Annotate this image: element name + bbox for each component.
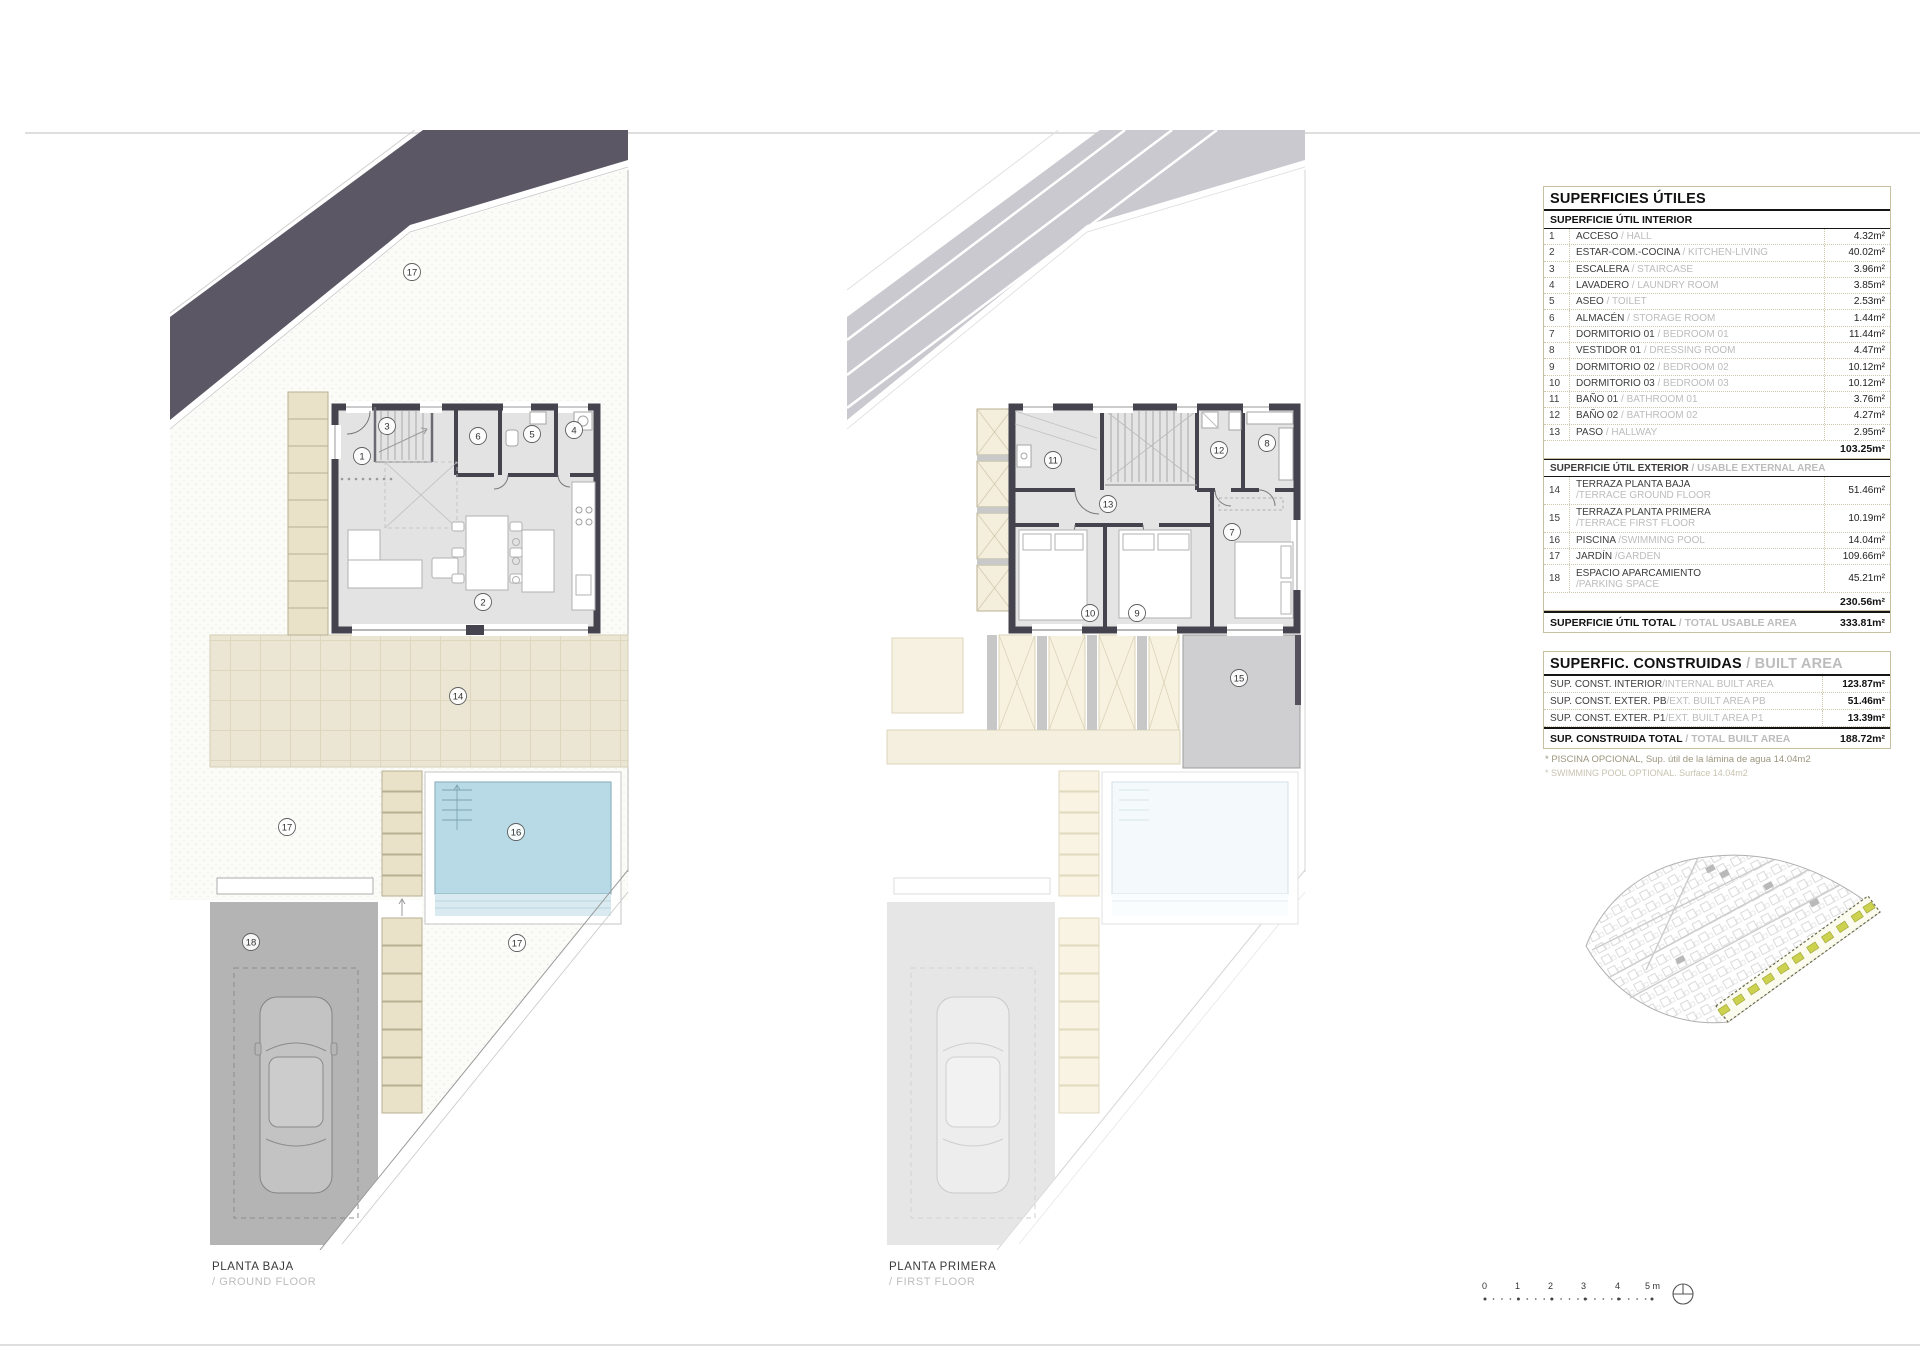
row-name: ACCESO / HALL: [1569, 229, 1824, 244]
table-row: 6ALMACÉN / STORAGE ROOM1.44m²: [1544, 310, 1890, 326]
row-name: BAÑO 02 / BATHROOM 02: [1569, 408, 1824, 423]
ground-floor-plan: 17 1 3 6 5 4 2 14 17 16 18 17: [170, 130, 630, 1250]
drawing-sheet: 17 1 3 6 5 4 2 14 17 16 18 17: [0, 0, 1920, 1358]
table-row: 1ACCESO / HALL4.32m²: [1544, 229, 1890, 245]
row-name-es: SUP. CONST. EXTER. P1: [1550, 713, 1665, 724]
room-number-label: 17: [509, 935, 526, 952]
built-total-row: SUP. CONSTRUIDA TOTAL / TOTAL BUILT AREA…: [1544, 727, 1890, 748]
room-name-en: /SWIMMING POOL: [1618, 535, 1705, 546]
room-number-label: 6: [470, 428, 487, 445]
row-name-en: /INTERNAL BUILT AREA: [1662, 679, 1774, 690]
room-name-es: ALMACÉN: [1576, 313, 1624, 324]
swimming-pool: [425, 772, 621, 924]
row-name: ESPACIO APARCAMIENTO/PARKING SPACE: [1569, 565, 1824, 592]
room-name-es: TERRAZA PLANTA PRIMERA: [1576, 507, 1822, 518]
room-number: 17: [512, 939, 523, 950]
room-name-es: DORMITORIO 02: [1576, 362, 1655, 373]
room-number-label: 13: [1100, 496, 1117, 513]
room-name-en: /TERRACE FIRST FLOOR: [1576, 518, 1822, 529]
row-number: 6: [1544, 313, 1569, 324]
room-name-es: DORMITORIO 03: [1576, 378, 1655, 389]
row-name: VESTIDOR 01 / DRESSING ROOM: [1569, 343, 1824, 358]
room-number-label: 1: [354, 448, 371, 465]
bottom-rule: [0, 1344, 1920, 1346]
row-value: 10.12m²: [1824, 376, 1890, 391]
row-name: TERRAZA PLANTA PRIMERA/TERRACE FIRST FLO…: [1569, 505, 1824, 532]
row-number: 4: [1544, 280, 1569, 291]
row-name: SUP. CONST. EXTER. PB/EXT. BUILT AREA PB: [1544, 696, 1822, 707]
room-name-en: / HALL: [1621, 231, 1652, 242]
room-number: 5: [529, 430, 534, 441]
room-name-en: /PARKING SPACE: [1576, 579, 1822, 590]
room-number-label: 12: [1211, 442, 1228, 459]
room-number-label: 18: [243, 934, 260, 951]
table-row: 4LAVADERO / LAUNDRY ROOM3.85m²: [1544, 278, 1890, 294]
room-number-label: 8: [1259, 435, 1276, 452]
first-floor-plan: 11 12 8 13 7 10 9 15: [847, 130, 1307, 1250]
footnote-pool-es: * PISCINA OPCIONAL, Sup. útil de la lámi…: [1545, 754, 1893, 765]
interior-section-header: SUPERFICIE ÚTIL INTERIOR: [1544, 211, 1890, 229]
room-number-label: 7: [1224, 524, 1241, 541]
room-name-es: BAÑO 01: [1576, 394, 1618, 405]
scale-bar: 0 1 2 3 4 5 m: [1478, 1278, 1718, 1310]
table-row: 5ASEO / TOILET2.53m²: [1544, 294, 1890, 310]
row-name-es: SUP. CONST. EXTER. PB: [1550, 696, 1667, 707]
row-value: 123.87m²: [1822, 676, 1890, 692]
room-number-label: 11: [1045, 452, 1062, 469]
table-row: 15TERRAZA PLANTA PRIMERA/TERRACE FIRST F…: [1544, 505, 1890, 533]
room-number: 15: [1234, 674, 1245, 685]
row-name: TERRAZA PLANTA BAJA/TERRACE GROUND FLOOR: [1569, 477, 1824, 504]
table-row: 8VESTIDOR 01 / DRESSING ROOM4.47m²: [1544, 343, 1890, 359]
table-title-es: SUPERFIC. CONSTRUIDAS: [1550, 656, 1742, 672]
row-number: 7: [1544, 329, 1569, 340]
room-number: 12: [1214, 446, 1225, 457]
row-name: LAVADERO / LAUNDRY ROOM: [1569, 278, 1824, 293]
row-value: 2.53m²: [1824, 294, 1890, 309]
room-number: 17: [407, 268, 418, 279]
table-title-en: / BUILT AREA: [1746, 656, 1843, 672]
terrace-ground: [210, 635, 628, 767]
row-number: 14: [1544, 485, 1569, 496]
ghost-road-band: [847, 130, 1305, 429]
room-number-label: 15: [1231, 670, 1248, 687]
row-value: 3.76m²: [1824, 392, 1890, 407]
ground-floor-caption: PLANTA BAJA / GROUND FLOOR: [212, 1261, 316, 1288]
built-areas-table: SUPERFIC. CONSTRUIDAS / BUILT AREA SUP. …: [1543, 651, 1891, 749]
room-name-en: / HALLWAY: [1606, 427, 1658, 438]
side-steps: [288, 392, 328, 635]
row-name: ASEO / TOILET: [1569, 294, 1824, 309]
scale-tick: 5 m: [1645, 1281, 1660, 1291]
room-name-en: / LAUNDRY ROOM: [1632, 280, 1719, 291]
row-value: 11.44m²: [1824, 327, 1890, 342]
table-row: 2ESTAR-COM.-COCINA / KITCHEN-LIVING40.02…: [1544, 245, 1890, 261]
row-value: 51.46m²: [1824, 477, 1890, 504]
room-name-en: / BEDROOM 01: [1658, 329, 1729, 340]
room-number: 6: [475, 432, 480, 443]
total-label-es: SUPERFICIE ÚTIL TOTAL: [1550, 617, 1676, 629]
room-name-en: / STAIRCASE: [1632, 264, 1694, 275]
room-number-label: 10: [1082, 605, 1099, 622]
room-number: 9: [1134, 609, 1139, 620]
row-value: 3.85m²: [1824, 278, 1890, 293]
row-value: 2.95m²: [1824, 425, 1890, 440]
row-name: ALMACÉN / STORAGE ROOM: [1569, 310, 1824, 325]
room-name-es: ESPACIO APARCAMIENTO: [1576, 568, 1822, 579]
room-name-es: ESTAR-COM.-COCINA: [1576, 247, 1680, 258]
room-name-en: / STORAGE ROOM: [1627, 313, 1715, 324]
table-row: 17JARDÍN /GARDEN109.66m²: [1544, 549, 1890, 565]
scale-tick: 4: [1615, 1281, 1620, 1291]
plan-subtitle: / FIRST FLOOR: [889, 1276, 996, 1288]
scale-tick: 2: [1548, 1281, 1553, 1291]
exterior-section-header: SUPERFICIE ÚTIL EXTERIOR / USABLE EXTERN…: [1544, 459, 1890, 477]
room-number: 10: [1085, 609, 1096, 620]
row-value: 14.04m²: [1824, 533, 1890, 548]
row-value: 109.66m²: [1824, 549, 1890, 564]
room-number: 3: [384, 422, 389, 433]
shutter-column: [977, 409, 1012, 611]
room-name-es: LAVADERO: [1576, 280, 1629, 291]
room-name-en: / KITCHEN-LIVING: [1683, 247, 1769, 258]
room-name-es: ESCALERA: [1576, 264, 1629, 275]
row-name: PISCINA /SWIMMING POOL: [1569, 533, 1824, 548]
room-number-label: 17: [404, 264, 421, 281]
row-number: 8: [1544, 345, 1569, 356]
room-number: 17: [282, 823, 293, 834]
table-title: SUPERFICIES ÚTILES: [1544, 187, 1890, 211]
room-number: 2: [480, 598, 485, 609]
room-number-label: 4: [566, 422, 583, 439]
table-row: 16PISCINA /SWIMMING POOL14.04m²: [1544, 533, 1890, 549]
room-name-es: ACCESO: [1576, 231, 1618, 242]
room-name-es: PASO: [1576, 427, 1603, 438]
table-row: SUP. CONST. EXTER. P1/EXT. BUILT AREA P1…: [1544, 710, 1890, 727]
footnotes: * PISCINA OPCIONAL, Sup. útil de la lámi…: [1545, 754, 1893, 778]
plan-subtitle: / GROUND FLOOR: [212, 1276, 316, 1288]
row-value: 1.44m²: [1824, 310, 1890, 325]
total-label-en: / TOTAL BUILT AREA: [1685, 733, 1790, 745]
row-value: 10.12m²: [1824, 359, 1890, 374]
row-name: SUP. CONST. INTERIOR/INTERNAL BUILT AREA: [1544, 679, 1822, 690]
exterior-subtotal: 230.56m²: [1544, 593, 1890, 611]
row-value: 51.46m²: [1822, 693, 1890, 709]
room-name-en: / BEDROOM 03: [1658, 378, 1729, 389]
row-number: 16: [1544, 535, 1569, 546]
first-floor-caption: PLANTA PRIMERA / FIRST FLOOR: [889, 1261, 996, 1288]
house-first: [1012, 401, 1303, 636]
site-key-plan: [1578, 850, 1896, 1038]
row-value: 40.02m²: [1824, 245, 1890, 260]
room-number: 14: [453, 692, 464, 703]
row-name-en: /EXT. BUILT AREA P1: [1665, 713, 1763, 724]
room-name-es: BAÑO 02: [1576, 410, 1618, 421]
room-number-label: 5: [524, 426, 541, 443]
room-name-en: / BATHROOM 01: [1621, 394, 1698, 405]
room-number: 4: [571, 426, 576, 437]
room-number-label: 2: [475, 594, 492, 611]
section-header-en: / USABLE EXTERNAL AREA: [1692, 463, 1826, 474]
row-number: 17: [1544, 551, 1569, 562]
row-value: 13.39m²: [1822, 710, 1890, 726]
row-name-es: SUP. CONST. INTERIOR: [1550, 679, 1662, 690]
room-name-en: / BEDROOM 02: [1658, 362, 1729, 373]
room-name-en: / BATHROOM 02: [1621, 410, 1698, 421]
row-name: PASO / HALLWAY: [1569, 425, 1824, 440]
row-value: 45.21m²: [1824, 565, 1890, 592]
footnote-pool-en: * SWIMMING POOL OPTIONAL. Surface 14.04m…: [1545, 768, 1893, 778]
total-label-es: SUP. CONSTRUIDA TOTAL: [1550, 733, 1682, 745]
usable-total-row: SUPERFICIE ÚTIL TOTAL / TOTAL USABLE ARE…: [1544, 611, 1890, 632]
row-number: 15: [1544, 513, 1569, 524]
planter: [217, 878, 373, 894]
total-value: 333.81m²: [1840, 617, 1885, 629]
room-number: 7: [1229, 528, 1234, 539]
room-name-es: DORMITORIO 01: [1576, 329, 1655, 340]
scale-tick: 0: [1482, 1281, 1487, 1291]
room-number-label: 9: [1129, 605, 1146, 622]
table-row: 9DORMITORIO 02 / BEDROOM 0210.12m²: [1544, 359, 1890, 375]
room-name-es: ASEO: [1576, 296, 1604, 307]
room-number-label: 14: [450, 688, 467, 705]
table-row: 13PASO / HALLWAY2.95m²: [1544, 425, 1890, 441]
row-value: 10.19m²: [1824, 505, 1890, 532]
room-name-es: TERRAZA PLANTA BAJA: [1576, 479, 1822, 490]
row-number: 2: [1544, 247, 1569, 258]
table-title: SUPERFIC. CONSTRUIDAS / BUILT AREA: [1544, 652, 1890, 676]
row-number: 18: [1544, 573, 1569, 584]
row-name: ESTAR-COM.-COCINA / KITCHEN-LIVING: [1569, 245, 1824, 260]
table-row: 7DORMITORIO 01 / BEDROOM 0111.44m²: [1544, 327, 1890, 343]
room-name-es: JARDÍN: [1576, 551, 1612, 562]
usable-areas-table: SUPERFICIES ÚTILES SUPERFICIE ÚTIL INTER…: [1543, 186, 1891, 633]
section-header-es: SUPERFICIE ÚTIL EXTERIOR: [1550, 463, 1689, 474]
row-value: 4.32m²: [1824, 229, 1890, 244]
table-row: 14TERRAZA PLANTA BAJA/TERRACE GROUND FLO…: [1544, 477, 1890, 505]
row-name: SUP. CONST. EXTER. P1/EXT. BUILT AREA P1: [1544, 713, 1822, 724]
row-name: DORMITORIO 02 / BEDROOM 02: [1569, 359, 1824, 374]
car: [255, 997, 337, 1193]
row-name: JARDÍN /GARDEN: [1569, 549, 1824, 564]
table-row: 10DORMITORIO 03 / BEDROOM 0310.12m²: [1544, 376, 1890, 392]
row-number: 9: [1544, 362, 1569, 373]
room-number-label: 3: [379, 418, 396, 435]
total-label-en: / TOTAL USABLE AREA: [1679, 617, 1797, 629]
row-name: DORMITORIO 03 / BEDROOM 03: [1569, 376, 1824, 391]
row-number: 13: [1544, 427, 1569, 438]
table-row: SUP. CONST. EXTER. PB/EXT. BUILT AREA PB…: [1544, 693, 1890, 710]
room-name-es: PISCINA: [1576, 535, 1615, 546]
table-row: 3ESCALERA / STAIRCASE3.96m²: [1544, 262, 1890, 278]
row-number: 1: [1544, 231, 1569, 242]
row-number: 10: [1544, 378, 1569, 389]
pergola: [987, 635, 1179, 730]
row-name: DORMITORIO 01 / BEDROOM 01: [1569, 327, 1824, 342]
terrace-first: [1183, 635, 1301, 768]
scale-tick-labels: 0 1 2 3 4 5 m: [1482, 1281, 1660, 1291]
room-name-en: /GARDEN: [1615, 551, 1661, 562]
table-row: 11BAÑO 01 / BATHROOM 013.76m²: [1544, 392, 1890, 408]
table-row: 12BAÑO 02 / BATHROOM 024.27m²: [1544, 408, 1890, 424]
room-name-en: / TOILET: [1607, 296, 1647, 307]
row-name: BAÑO 01 / BATHROOM 01: [1569, 392, 1824, 407]
plan-title: PLANTA PRIMERA: [889, 1261, 996, 1273]
north-arrow-icon: [1673, 1284, 1693, 1304]
garden-steps: [382, 771, 422, 1113]
house-ground: [329, 401, 597, 636]
room-name-en: /TERRACE GROUND FLOOR: [1576, 490, 1822, 501]
row-value: 4.27m²: [1824, 408, 1890, 423]
room-name-en: / DRESSING ROOM: [1644, 345, 1736, 356]
room-number: 13: [1103, 500, 1114, 511]
room-number: 1: [359, 452, 364, 463]
row-value: 3.96m²: [1824, 262, 1890, 277]
room-number: 16: [511, 828, 522, 839]
room-number-label: 17: [279, 819, 296, 836]
row-name-en: /EXT. BUILT AREA PB: [1667, 696, 1766, 707]
room-name-es: VESTIDOR 01: [1576, 345, 1641, 356]
scale-tick: 1: [1515, 1281, 1520, 1291]
room-number: 8: [1264, 439, 1269, 450]
room-number: 18: [246, 938, 257, 949]
room-number: 11: [1048, 456, 1058, 467]
scale-tick: 3: [1581, 1281, 1586, 1291]
total-value: 188.72m²: [1840, 733, 1885, 745]
row-value: 4.47m²: [1824, 343, 1890, 358]
room-number-label: 16: [508, 824, 525, 841]
row-number: 12: [1544, 410, 1569, 421]
row-number: 3: [1544, 264, 1569, 275]
row-number: 5: [1544, 296, 1569, 307]
parking-area: [210, 902, 378, 1245]
plan-title: PLANTA BAJA: [212, 1261, 316, 1273]
row-name: ESCALERA / STAIRCASE: [1569, 262, 1824, 277]
table-row: SUP. CONST. INTERIOR/INTERNAL BUILT AREA…: [1544, 676, 1890, 693]
row-number: 11: [1544, 394, 1569, 405]
interior-subtotal: 103.25m²: [1544, 441, 1890, 459]
table-row: 18ESPACIO APARCAMIENTO/PARKING SPACE45.2…: [1544, 565, 1890, 593]
